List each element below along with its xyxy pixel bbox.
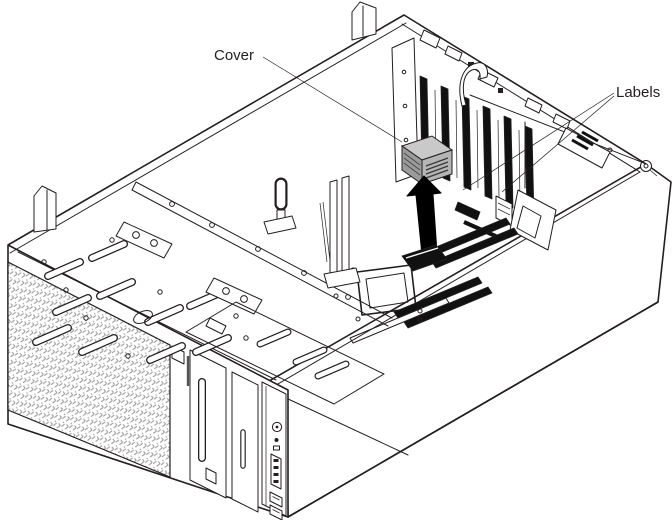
front-control-panel <box>262 382 286 520</box>
power-button-icon <box>272 422 281 431</box>
drive-bay-filler <box>232 372 258 512</box>
illustration-canvas: Cover Labels <box>0 0 672 520</box>
support-bracket <box>320 176 360 288</box>
stabilizer-foot <box>352 2 376 40</box>
callout-labels-label: Labels <box>616 84 660 101</box>
power-led <box>275 438 279 442</box>
lift-handle <box>264 184 296 234</box>
stabilizer-foot <box>34 186 56 232</box>
callout-cover-label: Cover <box>214 47 254 64</box>
status-led-strip <box>271 454 281 489</box>
connector-block <box>455 202 480 220</box>
drive-cage-latch <box>206 278 262 314</box>
lift-arrow-icon <box>407 176 441 255</box>
cable-strap <box>460 63 488 106</box>
leader-line <box>263 57 402 142</box>
cross-brace-rail <box>132 182 392 326</box>
front-bezel <box>8 245 288 520</box>
optical-drive-bay <box>190 350 226 498</box>
server-tower-diagram: Cover Labels <box>0 0 672 520</box>
drive-cage-latch <box>116 222 172 258</box>
right-side-panel <box>250 161 671 518</box>
callout-cover: Cover <box>214 47 402 142</box>
